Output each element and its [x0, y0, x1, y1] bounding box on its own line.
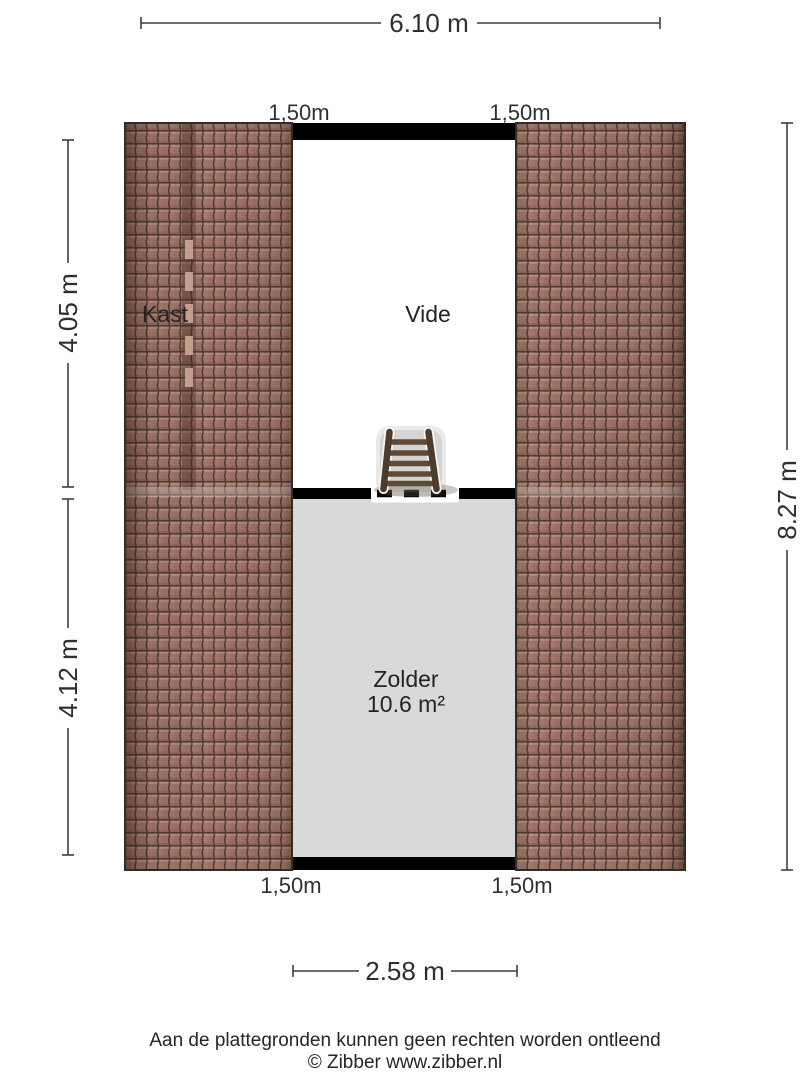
roof-right-shading: [516, 123, 685, 870]
floorplan-page: 6.10 m 4.05 m 4.12 m 8.27 m 2.58 m 1,50m…: [0, 0, 810, 1080]
dimension-left-upper-label: 4.05 m: [53, 273, 83, 353]
room-label-vide: Vide: [405, 301, 451, 327]
floorplan-canvas: 6.10 m 4.05 m 4.12 m 8.27 m 2.58 m 1,50m…: [0, 0, 810, 1080]
loft-ladder-icon: [374, 426, 458, 497]
footer-disclaimer: Aan de plattegronden kunnen geen rechten…: [149, 1030, 660, 1051]
dimension-total-height-label: 8.27 m: [772, 460, 802, 540]
dimension-bottom-width: 2.58 m: [293, 956, 517, 986]
room-label-kast: Kast: [142, 301, 189, 327]
wall-top: [292, 123, 516, 140]
dimension-bottom-width-label: 2.58 m: [365, 956, 445, 986]
room-area-zolder: 10.6 m²: [367, 691, 445, 717]
dimension-total-width: 6.10 m: [141, 8, 660, 38]
headroom-label-bottom-left: 1,50m: [260, 873, 321, 898]
wall-bottom: [292, 857, 516, 870]
roof-left-shading: [125, 123, 292, 870]
headroom-label-top-left: 1,50m: [268, 100, 329, 125]
dimension-left-lower: 4.12 m: [53, 499, 83, 855]
dimension-total-width-label: 6.10 m: [389, 8, 469, 38]
dimension-total-height: 8.27 m: [772, 123, 802, 870]
dimension-left-upper: 4.05 m: [53, 140, 83, 487]
roof-left: [125, 123, 292, 870]
headroom-label-bottom-right: 1,50m: [491, 873, 552, 898]
dimension-left-lower-label: 4.12 m: [53, 638, 83, 718]
headroom-label-top-right: 1,50m: [489, 100, 550, 125]
room-label-zolder: Zolder: [373, 666, 439, 692]
roof-right: [516, 123, 685, 870]
footer-copyright: © Zibber www.zibber.nl: [308, 1052, 503, 1073]
